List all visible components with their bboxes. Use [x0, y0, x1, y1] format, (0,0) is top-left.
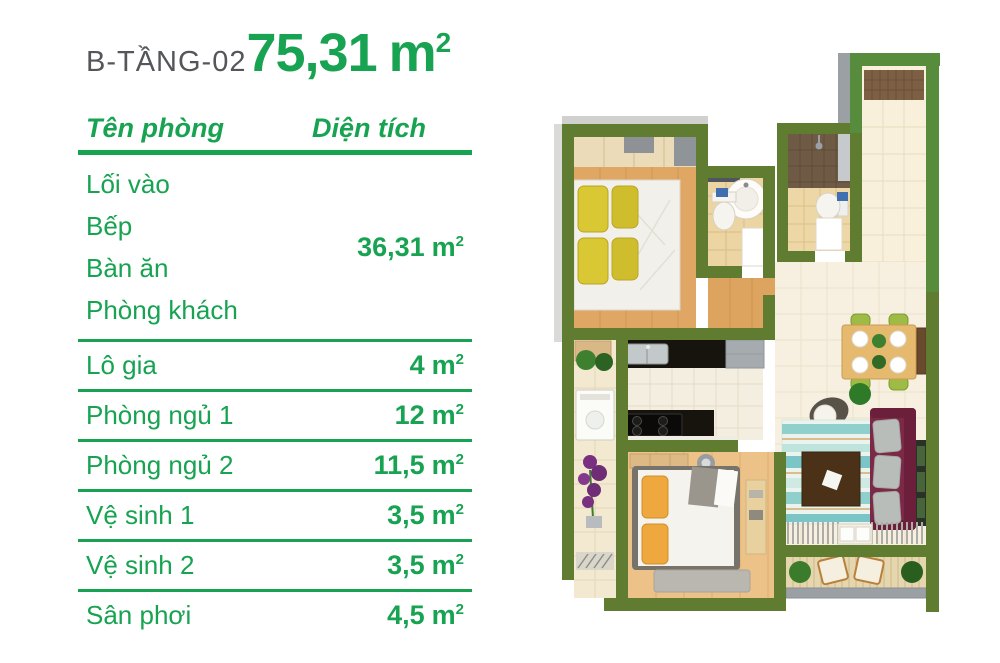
room-name: Phòng ngủ 2: [78, 450, 233, 481]
towel: [837, 192, 848, 201]
bedroom-1-furniture: [564, 180, 680, 310]
dining-set: [842, 314, 916, 390]
pillow: [642, 476, 668, 518]
room-name: Vệ sinh 1: [78, 500, 194, 531]
area-unit-sup: 2: [456, 501, 464, 518]
cushion: [873, 419, 902, 453]
door-leaf: [816, 218, 842, 250]
railing: [786, 588, 926, 598]
table-row-group-common: Lối vào Bếp Bàn ăn Phòng khách 36,31m2: [78, 155, 472, 342]
plate: [852, 331, 868, 347]
column-area: Diện tích: [312, 113, 426, 144]
coffee-table: [802, 452, 860, 506]
room-name: Vệ sinh 2: [78, 550, 194, 581]
area-unit-sup: 2: [456, 601, 464, 618]
plant: [576, 350, 596, 370]
area-number: 36,31: [357, 232, 425, 262]
cushion: [873, 455, 901, 489]
plant: [789, 561, 811, 583]
plant: [595, 353, 613, 371]
area-unit-sup: 2: [456, 351, 464, 368]
entry-doormat: [864, 70, 924, 100]
plate: [890, 357, 906, 373]
area-table-panel: B-TẦNG-02 75,31m2 Tên phòng Diện tích Lố…: [78, 26, 472, 639]
rug: [654, 570, 750, 592]
pillow: [578, 186, 608, 232]
lounge-chair: [817, 555, 848, 585]
table-row: Vệ sinh 2 3,5m2: [78, 542, 472, 592]
room-name: Sân phơi: [78, 600, 191, 631]
wall-frame: [917, 328, 926, 374]
area-unit-sup: 2: [456, 233, 464, 250]
table-header: Tên phòng Diện tích: [78, 102, 472, 155]
area-unit: m: [432, 350, 456, 380]
block-label: B-TẦNG-02: [86, 46, 246, 79]
area-value: 11,5m2: [374, 450, 472, 481]
area-unit-sup: 2: [456, 451, 464, 468]
wardrobe-cabinet: [624, 137, 654, 153]
sofa: [870, 408, 916, 530]
area-number: 4,5: [387, 600, 425, 630]
area-unit: m: [432, 400, 456, 430]
total-area: 75,31m2: [246, 26, 450, 80]
room-name: Lô gia: [78, 350, 157, 381]
area-unit: m: [432, 550, 456, 580]
shower-head: [816, 143, 823, 150]
table-plant: [872, 334, 886, 348]
group-area-value: 36,31m2: [357, 232, 472, 263]
cabinet: [630, 454, 688, 468]
room-name: Bàn ăn: [86, 247, 357, 289]
tv-console: [916, 440, 926, 526]
room-name: Phòng ngủ 1: [78, 400, 233, 431]
faucet: [744, 183, 749, 188]
toilet: [816, 193, 840, 219]
room-area-table: Tên phòng Diện tích Lối vào Bếp Bàn ăn P…: [78, 102, 472, 639]
area-unit: m: [432, 450, 456, 480]
apartment-floor-plan-sheet: B-TẦNG-02 75,31m2 Tên phòng Diện tích Lố…: [0, 0, 1000, 663]
pillow: [612, 186, 638, 228]
table-row: Sân phơi 4,5m2: [78, 592, 472, 639]
total-area-value: 75,31: [246, 23, 376, 83]
plate: [852, 357, 868, 373]
table-row: Phòng ngủ 2 11,5m2: [78, 442, 472, 492]
dining-table: [842, 325, 916, 379]
floor-plan: [520, 0, 1000, 663]
total-area-unit: m: [389, 23, 436, 83]
area-number: 11,5: [374, 450, 425, 480]
area-number: 4: [410, 350, 425, 380]
area-unit-sup: 2: [456, 551, 464, 568]
area-unit: m: [432, 500, 456, 530]
table-row: Phòng ngủ 1 12m2: [78, 392, 472, 442]
pillow: [642, 524, 668, 564]
room-name: Bếp: [86, 205, 357, 247]
bed-1: [574, 180, 680, 310]
area-unit: m: [432, 600, 456, 630]
table-row: Lô gia 4m2: [78, 342, 472, 392]
toilet: [713, 202, 735, 230]
area-value: 4,5m2: [387, 600, 472, 631]
plate: [890, 331, 906, 347]
towel: [716, 188, 728, 197]
area-number: 3,5: [387, 500, 425, 530]
table-row: Vệ sinh 1 3,5m2: [78, 492, 472, 542]
pillow: [612, 238, 638, 280]
area-unit-sup: 2: [456, 401, 464, 418]
room-name: Phòng khách: [86, 289, 357, 331]
plan-title: B-TẦNG-02 75,31m2: [86, 26, 472, 88]
column-room-name: Tên phòng: [86, 113, 224, 144]
area-value: 3,5m2: [387, 500, 472, 531]
pillow: [578, 238, 608, 284]
plant: [901, 561, 923, 583]
total-area-unit-sup: 2: [436, 27, 451, 58]
bed-2: [632, 466, 740, 570]
plant: [849, 383, 871, 405]
area-unit: m: [432, 232, 456, 262]
sink-faucet: [646, 345, 650, 349]
group-room-names: Lối vào Bếp Bàn ăn Phòng khách: [78, 155, 357, 339]
lounge-chair: [854, 556, 884, 585]
area-value: 12m2: [395, 400, 472, 431]
area-value: 4m2: [410, 350, 472, 381]
area-value: 3,5m2: [387, 550, 472, 581]
area-number: 3,5: [387, 550, 425, 580]
cushion: [873, 491, 901, 525]
room-name: Lối vào: [86, 163, 357, 205]
area-number: 12: [395, 400, 425, 430]
table-plant: [872, 355, 886, 369]
